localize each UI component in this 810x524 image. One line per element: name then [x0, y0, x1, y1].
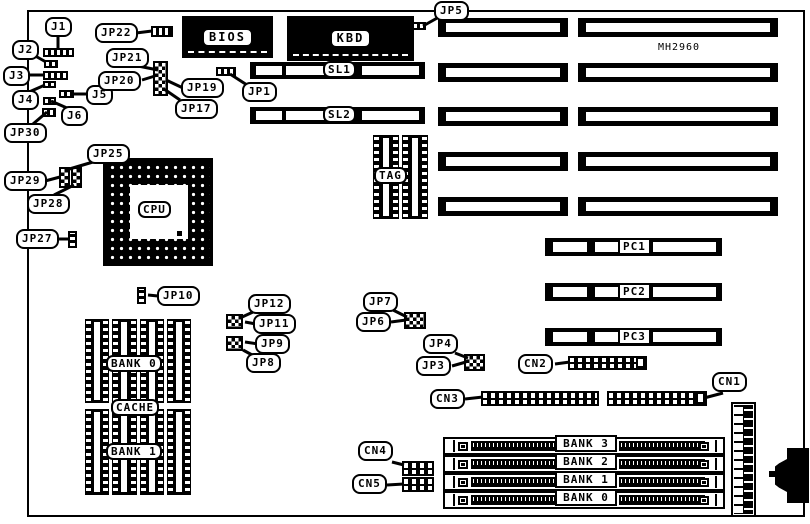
- callout-j1: J1: [45, 17, 72, 37]
- callout-jp5: JP5: [434, 1, 469, 21]
- callout-cn2: CN2: [518, 354, 553, 374]
- callout-cn4: CN4: [358, 441, 393, 461]
- callout-jp27: JP27: [16, 229, 59, 249]
- callout-cn3: CN3: [430, 389, 465, 409]
- callout-j2: J2: [12, 40, 39, 60]
- callout-jp29: JP29: [4, 171, 47, 191]
- callout-jp17: JP17: [175, 99, 218, 119]
- callout-cn5: CN5: [352, 474, 387, 494]
- callout-jp12: JP12: [248, 294, 291, 314]
- callout-cn1: CN1: [712, 372, 747, 392]
- callout-jp7: JP7: [363, 292, 398, 312]
- callout-jp10: JP10: [157, 286, 200, 306]
- callout-jp22: JP22: [95, 23, 138, 43]
- callout-j3: J3: [3, 66, 30, 86]
- callout-jp28: JP28: [27, 194, 70, 214]
- callout-jp19: JP19: [181, 78, 224, 98]
- callout-jp25: JP25: [87, 144, 130, 164]
- callout-jp4: JP4: [423, 334, 458, 354]
- callout-j6: J6: [61, 106, 88, 126]
- callout-jp20: JP20: [98, 71, 141, 91]
- motherboard-diagram: BIOS KBD MH2960 SL1 SL2 PC1 PC2: [0, 0, 810, 524]
- callout-jp6: JP6: [356, 312, 391, 332]
- callout-jp3: JP3: [416, 356, 451, 376]
- callout-j4: J4: [12, 90, 39, 110]
- callout-jp21: JP21: [106, 48, 149, 68]
- callout-jp30: JP30: [4, 123, 47, 143]
- callout-jp1: JP1: [242, 82, 277, 102]
- callout-jp9: JP9: [255, 334, 290, 354]
- callout-jp11: JP11: [253, 314, 296, 334]
- callout-jp8: JP8: [246, 353, 281, 373]
